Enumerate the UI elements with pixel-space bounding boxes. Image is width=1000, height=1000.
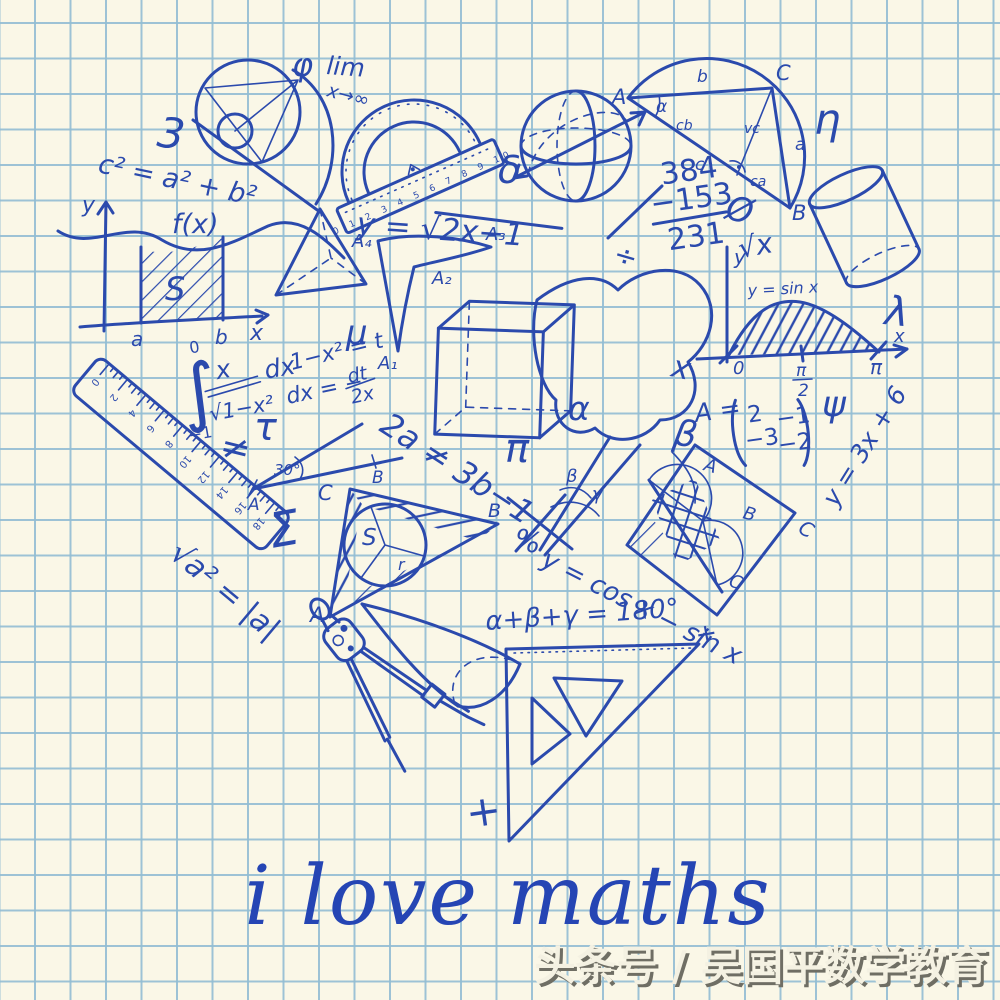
svg-text:2x: 2x [349, 382, 377, 409]
thales-a: a [795, 135, 805, 155]
angle-30-A: A [247, 495, 260, 515]
eta-symbol: η [814, 95, 841, 144]
sqrt-equation: y = √2x−1 [354, 206, 562, 256]
sine-pi-half-denominator: 2 [798, 381, 809, 401]
svg-text:−2: −2 [776, 428, 813, 458]
thales-ca: ca [750, 174, 766, 190]
title-i-love-maths: i love maths [244, 849, 771, 944]
obelus-symbol: ÷ [610, 237, 642, 275]
substitution-1: 1−x² = t [287, 328, 387, 376]
svg-text:231: 231 [665, 216, 727, 259]
thales-alpha: α [656, 97, 667, 117]
ruler-number: 16 [231, 499, 248, 516]
pi-symbol: π [505, 426, 530, 472]
fx-y-axis-label: y [81, 193, 96, 218]
not-equal-symbol: ≠ [216, 425, 255, 472]
thales-vc: vc [744, 121, 760, 137]
ruler-number: 0 [88, 376, 101, 388]
vertex-A2: A₂ [431, 268, 452, 289]
angle-gamma-label: γ [592, 484, 604, 505]
graph-paper-background: φ 3 lim x→∞ c² = a² + b² f(x) y x a b S … [0, 0, 1000, 1000]
lambda-symbol: λ [881, 288, 911, 336]
tau-symbol: τ [254, 405, 278, 449]
ruler-number: 2 [107, 391, 120, 403]
incircle-C: C [318, 481, 333, 505]
svg-text:2: 2 [746, 401, 764, 429]
vertex-A4: A₄ [351, 231, 372, 252]
svg-text:0: 0 [188, 337, 201, 357]
sigma-symbol: Σ [264, 499, 304, 560]
incircle-triangle [330, 489, 498, 617]
angle-30-B: B [372, 468, 384, 488]
area-s-label: S [165, 270, 185, 308]
square-B: B [741, 503, 759, 527]
sine-equation-label: y = sin x [746, 277, 819, 300]
integral-formula: ∫ 0 −1 x √1−x² dx [170, 321, 305, 445]
thales-A: A [610, 85, 626, 109]
psi-symbol: ψ [822, 384, 847, 425]
ruler-number: 18 [250, 515, 267, 532]
sine-origin-label: 0 [733, 358, 744, 379]
angle-30-label: 30° [274, 461, 301, 479]
thales-b: b [697, 67, 708, 87]
thales-C: C [776, 61, 791, 85]
set-square-icon [506, 644, 699, 841]
svg-text:−3: −3 [743, 424, 780, 454]
phi-symbol: φ [292, 46, 313, 84]
vertex-A1: A₁ [377, 353, 398, 374]
plus-sign: + [463, 784, 505, 837]
limit-subscript: x→∞ [324, 79, 372, 112]
ruler-number: 4 [125, 407, 138, 419]
cylinder-icon [804, 159, 924, 295]
square-A: A [701, 454, 720, 478]
ruler-number: 12 [195, 468, 212, 485]
limit-label: lim [326, 51, 366, 83]
fx-b-tick-label: b [215, 325, 228, 349]
ruler-number: 6 [144, 422, 157, 434]
cube-icon [435, 300, 575, 439]
sine-pi-label: π [870, 355, 883, 379]
incircle-S: S [362, 525, 377, 551]
ruler-number: 8 [162, 438, 175, 450]
sqrt-abs-identity: √a² = |a| [163, 535, 287, 647]
ruler-number: 10 [176, 453, 193, 470]
thales-cb: cb [676, 118, 693, 134]
math-heart-illustration: φ 3 lim x→∞ c² = a² + b² f(x) y x a b S … [0, 0, 1000, 1000]
fx-x-axis-label: x [249, 321, 264, 346]
sine-y-label: y [733, 245, 747, 269]
ruler-number: 14 [213, 484, 230, 501]
fx-a-tick-label: a [131, 327, 143, 351]
three-numeral: 3 [155, 107, 188, 159]
angle-beta-label: β [565, 466, 578, 487]
hatched-triangle-A [378, 236, 491, 351]
compass-icon [287, 565, 484, 781]
fx-curve-label: f(x) [172, 209, 219, 240]
plus-sign: + [693, 618, 720, 651]
square-corner-C: C [795, 515, 819, 543]
vertex-A3: A₃ [485, 224, 506, 245]
angle-sum-formula: α+β+γ = 180° [484, 594, 679, 637]
sine-pi-half-numerator: π [796, 361, 807, 381]
thales-B: B [792, 201, 806, 225]
watermark-text: 头条号 / 吴国平数学教育 [534, 942, 988, 990]
